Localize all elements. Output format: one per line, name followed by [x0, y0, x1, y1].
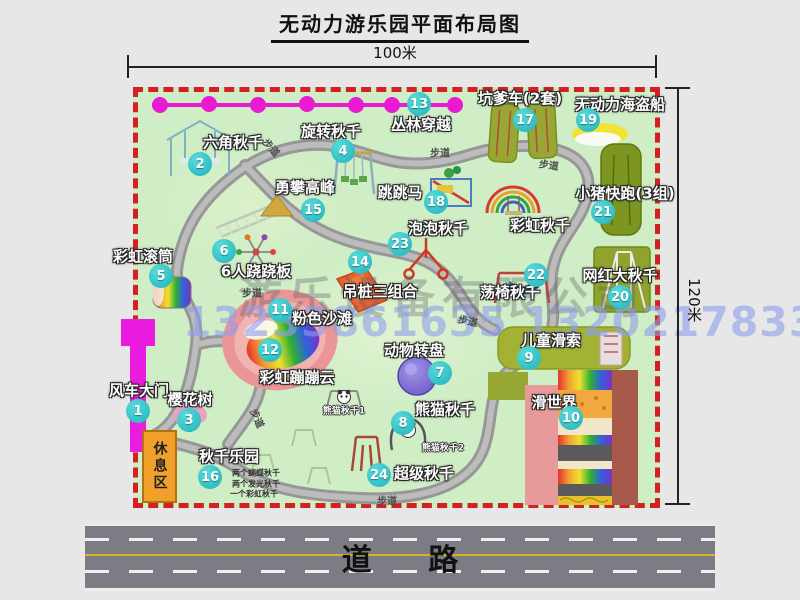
label-hanging-post: 吊桩三组合	[342, 281, 417, 302]
dim-line-vertical	[677, 88, 679, 505]
marker-14: 14	[348, 250, 372, 274]
label-panda-swing: 熊猫秋千	[415, 399, 475, 420]
label-panda-swing-1: 熊猫秋千1	[323, 404, 365, 417]
marker-3: 3	[177, 408, 201, 432]
dim-label-height: 120米	[684, 278, 705, 322]
page-title: 无动力游乐园平面布局图	[271, 8, 529, 43]
label-pig-run: 小猪快跑(3组)	[575, 183, 674, 204]
dim-tick-right	[655, 55, 657, 78]
label-rainbow-roller: 彩虹滚筒	[113, 246, 173, 267]
marker-15: 15	[301, 198, 325, 222]
dim-line-horizontal	[128, 66, 657, 68]
marker-13: 13	[407, 92, 431, 116]
label-climbing-peak: 勇攀高峰	[275, 177, 335, 198]
label-kengdie-car: 坑爹车(2套)	[478, 88, 562, 109]
page-title-wrap: 无动力游乐园平面布局图	[0, 8, 800, 43]
swing-park-note-1: 两个蝴蝶秋千	[232, 468, 280, 479]
label-panda-swing-2: 熊猫秋千2	[422, 441, 464, 454]
marker-20: 20	[608, 285, 632, 309]
playground-layout-page: { "title": "无动力游乐园平面布局图", "dimensions": …	[0, 0, 800, 600]
dim-tick-top	[665, 87, 690, 89]
label-jungle-crossing: 丛林穿越	[391, 114, 451, 135]
marker-11: 11	[268, 298, 292, 322]
marker-18: 18	[424, 190, 448, 214]
footpath-label-7: 步道	[377, 493, 397, 508]
marker-2: 2	[188, 152, 212, 176]
label-animal-carousel: 动物转盘	[384, 340, 444, 361]
marker-7: 7	[428, 361, 452, 385]
label-rainbow-cloud: 彩虹蹦蹦云	[259, 367, 334, 388]
road-label: 道 路	[85, 526, 715, 588]
label-hexagon-swing: 六角秋千	[203, 132, 263, 153]
footpath-label-2: 步道	[430, 145, 450, 160]
label-rotating-swing: 旋转秋千	[301, 121, 361, 142]
label-seesaw: 6人跷跷板	[221, 261, 291, 282]
marker-23: 23	[388, 232, 412, 256]
marker-5: 5	[149, 264, 173, 288]
footpath-label-3: 步道	[538, 155, 560, 173]
label-bubble-swing: 泡泡秋千	[408, 218, 468, 239]
marker-1: 1	[126, 399, 150, 423]
label-windmill-gate: 风车大门	[109, 380, 169, 401]
dim-label-width: 100米	[355, 42, 435, 63]
rest-area: 休息区	[142, 430, 177, 503]
marker-24: 24	[367, 463, 391, 487]
marker-16: 16	[198, 465, 222, 489]
marker-4: 4	[331, 139, 355, 163]
marker-8: 8	[391, 411, 415, 435]
marker-19: 19	[576, 108, 600, 132]
marker-21: 21	[591, 200, 615, 224]
label-big-swing: 网红大秋千	[582, 265, 657, 286]
marker-6: 6	[212, 239, 236, 263]
marker-10: 10	[559, 406, 583, 430]
swing-park-note-3: 一个彩虹秋千	[230, 489, 278, 500]
footpath-label-4: 步道	[242, 285, 262, 300]
label-cherry-tree: 樱花树	[167, 389, 212, 410]
label-super-swing: 超级秋千	[394, 463, 454, 484]
marker-12: 12	[258, 338, 282, 362]
marker-22: 22	[524, 263, 548, 287]
marker-17: 17	[513, 108, 537, 132]
road: 道 路	[85, 523, 715, 591]
label-swing-park: 秋千乐园	[199, 446, 259, 467]
label-rainbow-swing: 彩虹秋千	[510, 215, 570, 236]
dim-tick-bottom	[665, 503, 690, 505]
dim-tick-left	[127, 55, 129, 78]
marker-9: 9	[517, 346, 541, 370]
label-pink-beach: 粉色沙滩	[292, 308, 352, 329]
label-jumping-horse: 跳跳马	[377, 182, 422, 203]
